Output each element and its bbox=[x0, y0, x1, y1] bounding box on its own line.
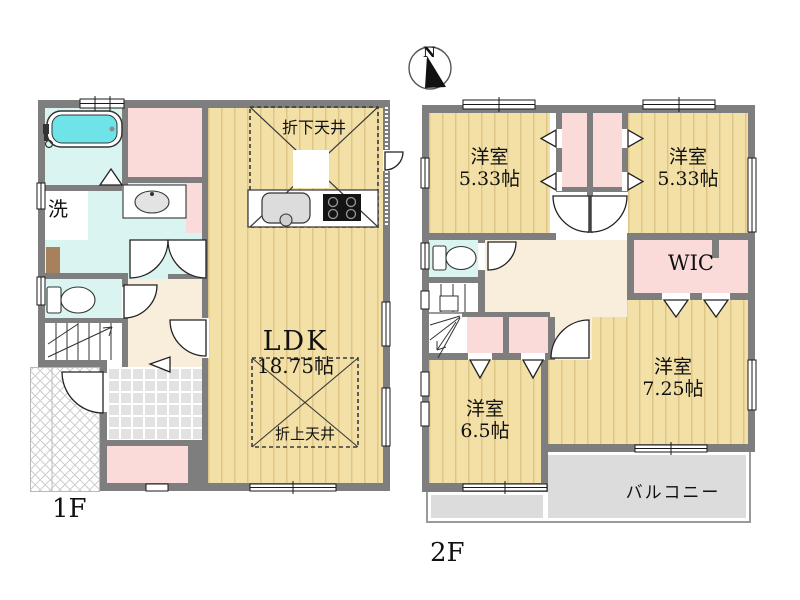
hallway-2f bbox=[485, 240, 627, 317]
toilet-room-2f bbox=[429, 240, 478, 277]
staircase-1f bbox=[45, 323, 122, 360]
washroom-label: 洗 bbox=[48, 198, 68, 222]
ldk-size-label: 18.75帖 bbox=[208, 355, 383, 379]
compass-north-label: N bbox=[423, 45, 436, 62]
bedroom-nw-label: 洋室 5.33帖 bbox=[429, 146, 550, 191]
bedroom-sw-name: 洋室 bbox=[429, 398, 541, 420]
bedroom-se-size: 7.25帖 bbox=[573, 378, 773, 400]
balcony-label: バルコニー bbox=[593, 483, 753, 503]
storage-room-1f bbox=[128, 108, 202, 177]
entrance-tile bbox=[107, 367, 202, 440]
toilet-room-1f bbox=[45, 279, 122, 323]
hallway-alcove-2f bbox=[548, 317, 592, 360]
floor2-label: 2F bbox=[430, 538, 465, 569]
bedroom-se-name: 洋室 bbox=[573, 356, 773, 378]
closet-strip-1f bbox=[186, 183, 202, 233]
balcony-left bbox=[426, 492, 546, 523]
bedroom-ne-size: 5.33帖 bbox=[628, 168, 748, 190]
bedroom-sw-size: 6.5帖 bbox=[429, 420, 541, 442]
porch-approach bbox=[30, 367, 100, 492]
kitchen-backdoor-arc bbox=[385, 152, 403, 170]
floor1-label: 1F bbox=[52, 494, 87, 525]
closet-m2-2f bbox=[509, 317, 548, 355]
linen-shelf bbox=[46, 247, 60, 277]
closet-n2-2f bbox=[593, 113, 622, 187]
bedroom-se-label: 洋室 7.25帖 bbox=[573, 356, 773, 401]
door-vestibule-2f bbox=[550, 192, 628, 233]
bedroom-ne-label: 洋室 5.33帖 bbox=[628, 146, 748, 191]
closet-n1-2f bbox=[562, 113, 587, 187]
bedroom-nw-size: 5.33帖 bbox=[429, 168, 550, 190]
wic-label: WIC bbox=[634, 251, 748, 276]
living-ceiling-label: 折上天井 bbox=[252, 426, 358, 444]
bedroom-ne-name: 洋室 bbox=[628, 146, 748, 168]
bedroom-nw-name: 洋室 bbox=[429, 146, 550, 168]
bedroom-sw-label: 洋室 6.5帖 bbox=[429, 398, 541, 443]
floor-plan-page: N 1F 洗 折下天井 LDK 18.75帖 折上天井 2F 洋室 5.33帖 … bbox=[0, 0, 800, 600]
bathroom-1f bbox=[45, 108, 122, 185]
kitchen-ceiling-label: 折下天井 bbox=[250, 119, 378, 138]
shoe-closet bbox=[107, 446, 190, 483]
entrance-hall-1f bbox=[128, 279, 202, 367]
closet-m1-2f bbox=[467, 317, 503, 355]
